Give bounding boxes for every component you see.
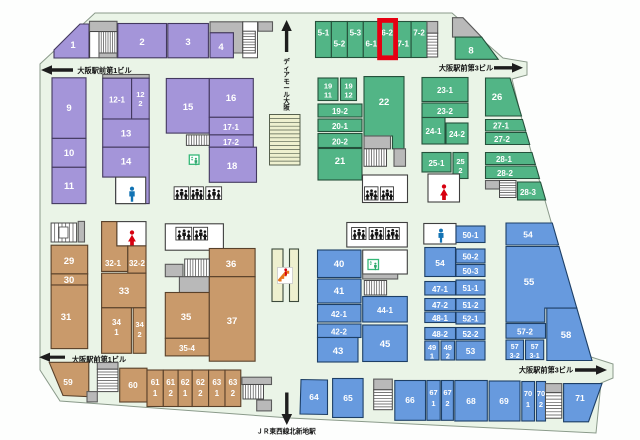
svg-text:28-2: 28-2	[497, 169, 514, 178]
svg-text:67: 67	[443, 388, 451, 397]
svg-text:68: 68	[466, 396, 476, 406]
svg-text:9: 9	[66, 103, 71, 114]
svg-text:4: 4	[218, 42, 224, 53]
svg-text:69: 69	[499, 396, 509, 406]
svg-text:2: 2	[445, 399, 449, 408]
svg-text:1: 1	[114, 328, 119, 337]
svg-text:12: 12	[136, 90, 144, 99]
svg-text:28-3: 28-3	[520, 188, 537, 197]
svg-text:12-1: 12-1	[109, 96, 126, 105]
svg-text:51-1: 51-1	[462, 284, 479, 293]
svg-text:19: 19	[324, 82, 332, 91]
svg-text:31: 31	[61, 312, 72, 323]
svg-text:23-1: 23-1	[437, 86, 454, 95]
svg-text:67: 67	[429, 388, 437, 397]
svg-text:3: 3	[185, 37, 190, 48]
svg-text:65: 65	[343, 393, 353, 403]
svg-text:60: 60	[128, 380, 138, 390]
svg-text:42-2: 42-2	[331, 328, 348, 337]
svg-text:26: 26	[492, 92, 503, 103]
svg-text:17-2: 17-2	[223, 138, 240, 147]
svg-text:2: 2	[168, 389, 173, 398]
svg-text:32-1: 32-1	[105, 259, 122, 268]
svg-text:35: 35	[181, 312, 192, 323]
svg-text:54: 54	[435, 258, 445, 268]
svg-text:2: 2	[198, 389, 203, 398]
svg-text:27-2: 27-2	[494, 135, 511, 144]
svg-text:55: 55	[524, 277, 535, 288]
svg-text:71: 71	[575, 393, 585, 403]
svg-text:2: 2	[139, 37, 144, 48]
svg-text:25-1: 25-1	[428, 159, 445, 168]
svg-text:34: 34	[135, 320, 144, 329]
svg-text:5-1: 5-1	[318, 29, 330, 38]
svg-text:43: 43	[333, 346, 344, 357]
svg-text:61: 61	[151, 378, 160, 387]
svg-text:1: 1	[431, 399, 435, 408]
svg-text:大阪駅前第3ビル: 大阪駅前第3ビル	[519, 366, 574, 375]
svg-text:13: 13	[121, 129, 132, 140]
svg-text:24-1: 24-1	[425, 127, 442, 136]
svg-text:14: 14	[121, 157, 132, 168]
svg-text:23-2: 23-2	[437, 107, 454, 116]
svg-text:10: 10	[64, 148, 75, 159]
svg-text:24-2: 24-2	[449, 130, 466, 139]
svg-text:45: 45	[380, 339, 391, 350]
svg-text:50-1: 50-1	[462, 231, 479, 240]
svg-text:52-2: 52-2	[462, 330, 479, 339]
svg-text:47-1: 47-1	[432, 285, 449, 294]
svg-text:ディアモール大阪: ディアモール大阪	[283, 57, 290, 112]
svg-text:6-2: 6-2	[381, 29, 393, 38]
svg-text:2: 2	[138, 99, 142, 108]
svg-text:54: 54	[523, 230, 533, 240]
svg-text:70: 70	[537, 389, 545, 398]
svg-text:2: 2	[231, 389, 236, 398]
svg-text:27-1: 27-1	[493, 122, 510, 131]
svg-text:44-1: 44-1	[377, 306, 394, 315]
svg-text:1: 1	[153, 389, 158, 398]
svg-text:21: 21	[335, 156, 346, 167]
svg-text:48-2: 48-2	[432, 330, 449, 339]
svg-text:32-2: 32-2	[129, 259, 146, 268]
svg-text:1: 1	[526, 400, 530, 409]
svg-text:34: 34	[112, 318, 121, 327]
svg-text:29: 29	[64, 256, 75, 267]
svg-text:48-1: 48-1	[432, 314, 449, 323]
svg-text:53: 53	[466, 346, 476, 356]
svg-text:62: 62	[181, 378, 190, 387]
svg-text:2: 2	[446, 352, 450, 361]
svg-text:57: 57	[531, 344, 539, 351]
svg-text:25: 25	[456, 157, 464, 166]
svg-text:20-1: 20-1	[332, 122, 349, 131]
svg-text:63: 63	[212, 378, 221, 387]
svg-text:7-2: 7-2	[413, 29, 425, 38]
svg-text:1: 1	[215, 389, 220, 398]
svg-text:41: 41	[334, 286, 345, 297]
svg-text:40: 40	[334, 259, 345, 270]
svg-text:3-1: 3-1	[530, 353, 540, 360]
svg-text:70: 70	[524, 389, 532, 398]
svg-text:大阪駅前第1ビル: 大阪駅前第1ビル	[77, 66, 132, 75]
svg-text:11: 11	[64, 181, 75, 192]
svg-text:28-1: 28-1	[496, 155, 513, 164]
svg-text:ＪＲ東西線北新地駅: ＪＲ東西線北新地駅	[256, 427, 316, 436]
svg-text:50-2: 50-2	[462, 253, 479, 262]
svg-text:22: 22	[379, 97, 390, 108]
svg-text:37: 37	[227, 316, 238, 327]
svg-text:62: 62	[196, 378, 205, 387]
svg-text:16: 16	[226, 93, 237, 104]
svg-text:19: 19	[344, 82, 352, 91]
svg-text:7-1: 7-1	[397, 40, 409, 49]
svg-text:1: 1	[430, 352, 434, 361]
svg-text:15: 15	[183, 102, 194, 113]
svg-text:33: 33	[119, 286, 130, 297]
svg-text:58: 58	[561, 330, 572, 341]
svg-text:17-1: 17-1	[223, 123, 240, 132]
svg-text:64: 64	[309, 392, 319, 402]
svg-text:3-2: 3-2	[510, 353, 520, 360]
svg-text:19-2: 19-2	[332, 107, 349, 116]
svg-text:59: 59	[63, 377, 73, 387]
svg-text:2: 2	[539, 400, 543, 409]
svg-text:12: 12	[344, 91, 352, 100]
svg-text:30: 30	[64, 275, 75, 286]
svg-text:36: 36	[226, 259, 237, 270]
svg-text:18: 18	[227, 161, 238, 172]
svg-text:52-1: 52-1	[462, 315, 479, 324]
svg-text:1: 1	[70, 40, 76, 51]
svg-text:50-3: 50-3	[462, 267, 479, 276]
svg-text:42-1: 42-1	[331, 310, 348, 319]
svg-text:1: 1	[183, 389, 188, 398]
svg-text:63: 63	[228, 378, 237, 387]
svg-text:51-2: 51-2	[462, 301, 479, 310]
svg-text:6-1: 6-1	[365, 40, 377, 49]
svg-text:11: 11	[324, 91, 332, 100]
svg-text:20-2: 20-2	[332, 138, 349, 147]
svg-text:57-2: 57-2	[517, 328, 534, 337]
svg-text:61: 61	[166, 378, 175, 387]
svg-text:5-2: 5-2	[334, 40, 346, 49]
svg-text:66: 66	[405, 395, 415, 405]
svg-text:47-2: 47-2	[432, 301, 449, 310]
svg-text:35-4: 35-4	[179, 344, 196, 353]
svg-text:57: 57	[511, 344, 519, 351]
svg-text:大阪駅前第3ビル: 大阪駅前第3ビル	[439, 63, 494, 72]
svg-text:5-3: 5-3	[350, 29, 362, 38]
svg-text:8: 8	[468, 46, 473, 57]
svg-text:2: 2	[138, 330, 142, 339]
